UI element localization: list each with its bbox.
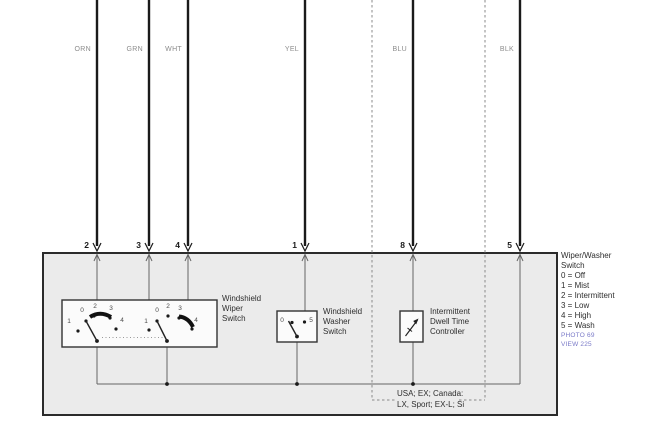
switch-position-legend: Wiper/Washer Switch 0 = Off 1 = Mist 2 =… <box>561 251 615 349</box>
view-reference-link[interactable]: VIEW 225 <box>561 340 615 349</box>
legend-entry-mist: 1 = Mist <box>561 281 615 291</box>
pole2-pos-2: 2 <box>163 303 173 310</box>
diagram-canvas <box>0 0 645 428</box>
pole1-pos-2: 2 <box>90 303 100 310</box>
dwell-controller-label: Intermittent Dwell Time Controller <box>430 307 470 337</box>
wire-color-label-wht: WHT <box>152 46 182 53</box>
terminal-number-8: 8 <box>391 240 405 250</box>
legend-title-line1: Wiper/Washer <box>561 251 615 261</box>
applicability-caption: USA; EX; Canada: LX, Sport; EX-L; Si <box>397 388 464 410</box>
pole1-pos-1: 1 <box>64 318 74 325</box>
dwell-controller-label-line3: Controller <box>430 327 470 337</box>
wire-color-label-orn: ORN <box>61 46 91 53</box>
pole2-pos-1: 1 <box>141 318 151 325</box>
terminal-number-3: 3 <box>127 240 141 250</box>
washer-pos-0: 0 <box>277 317 287 324</box>
caption-line1: USA; EX; Canada: <box>397 388 464 399</box>
wiper-switch-label-line3: Switch <box>222 314 261 324</box>
legend-entry-high: 4 = High <box>561 311 615 321</box>
pole1-pos-4: 4 <box>117 317 127 324</box>
wire-color-label-yel: YEL <box>269 46 299 53</box>
pole2-pos-0: 0 <box>152 307 162 314</box>
pole1-pos-0: 0 <box>77 307 87 314</box>
washer-switch-symbol <box>277 311 317 342</box>
wire-orn <box>93 0 101 251</box>
photo-reference-link[interactable]: PHOTO 69 <box>561 331 615 340</box>
legend-entry-intermittent: 2 = Intermittent <box>561 291 615 301</box>
wire-grn <box>145 0 153 251</box>
dwell-controller-symbol <box>400 311 423 342</box>
wiper-switch-label-line2: Wiper <box>222 304 261 314</box>
terminal-number-4: 4 <box>166 240 180 250</box>
wire-blk <box>516 0 524 251</box>
washer-switch-label-line2: Washer <box>323 317 362 327</box>
legend-entry-off: 0 = Off <box>561 271 615 281</box>
wiring-diagram: ORN GRN WHT YEL BLU BLK 2 3 4 1 8 5 1 0 … <box>0 0 645 428</box>
washer-switch-label: Windshield Washer Switch <box>323 307 362 337</box>
wire-wht <box>184 0 192 251</box>
washer-switch-label-line1: Windshield <box>323 307 362 317</box>
wiper-switch-label-line1: Windshield <box>222 294 261 304</box>
terminal-number-1: 1 <box>283 240 297 250</box>
legend-entry-low: 3 = Low <box>561 301 615 311</box>
wiper-switch-label: Windshield Wiper Switch <box>222 294 261 324</box>
pole2-pos-3: 3 <box>175 305 185 312</box>
dwell-controller-label-line1: Intermittent <box>430 307 470 317</box>
wire-yel <box>301 0 309 251</box>
caption-line2: LX, Sport; EX-L; Si <box>397 399 464 410</box>
terminal-number-5: 5 <box>498 240 512 250</box>
wire-color-label-blk: BLK <box>484 46 514 53</box>
washer-pos-5: 5 <box>306 317 316 324</box>
legend-title-line2: Switch <box>561 261 615 271</box>
washer-switch-label-line3: Switch <box>323 327 362 337</box>
dwell-controller-label-line2: Dwell Time <box>430 317 470 327</box>
legend-entry-wash: 5 = Wash <box>561 321 615 331</box>
wire-blu <box>409 0 417 251</box>
terminal-number-2: 2 <box>75 240 89 250</box>
pole2-pos-4: 4 <box>191 317 201 324</box>
pole1-pos-3: 3 <box>106 305 116 312</box>
wire-color-label-grn: GRN <box>113 46 143 53</box>
wire-color-label-blu: BLU <box>377 46 407 53</box>
